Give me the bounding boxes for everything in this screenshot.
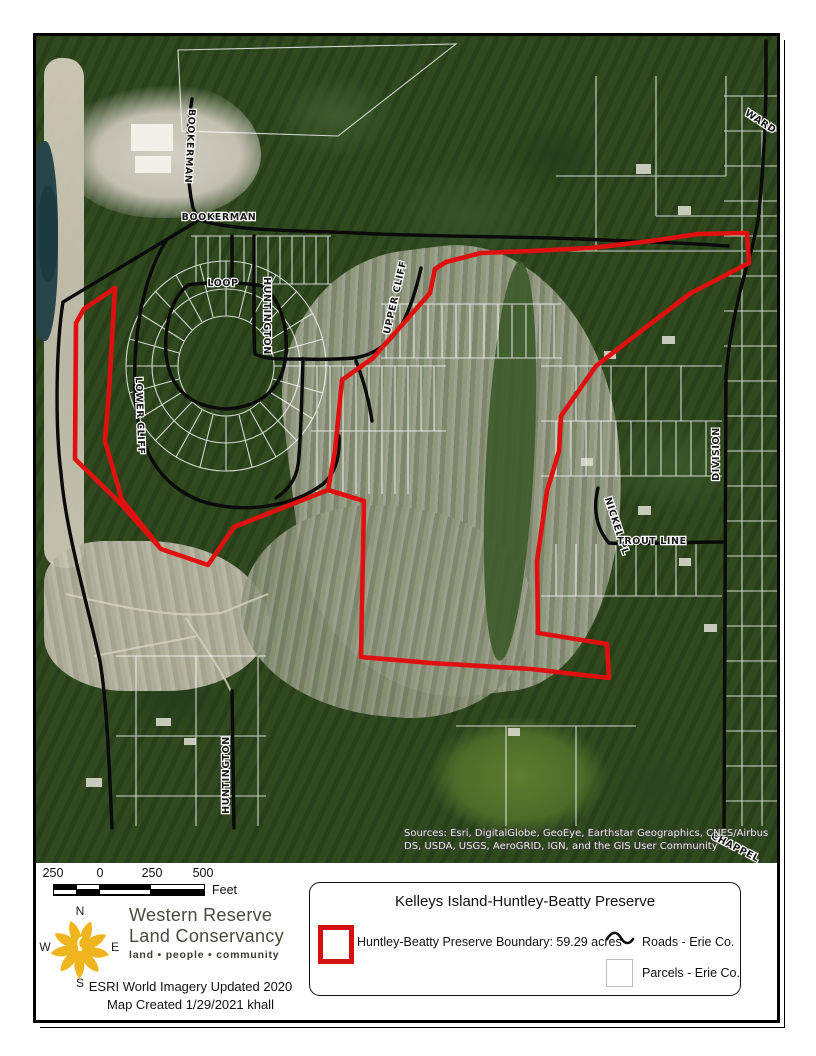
- scale-bar: [53, 884, 205, 896]
- legend-box: Kelleys Island-Huntley-Beatty Preserve H…: [309, 882, 741, 996]
- roads-legend-label: Roads - Erie Co.: [642, 935, 734, 949]
- parcels-legend-label: Parcels - Erie Co.: [642, 966, 740, 980]
- road-label-lower-cliff: LOWER CLIFF: [133, 377, 147, 455]
- map-frame: BOOKERMAN BOOKERMAN WARD LOOP HUNTINGTON…: [33, 33, 780, 1023]
- road-label-huntington-south: HUNTINGTON: [221, 736, 232, 814]
- legend-title: Kelleys Island-Huntley-Beatty Preserve: [310, 893, 740, 910]
- road-label-division: DIVISION: [711, 427, 722, 481]
- road-label-trout-line: TROUT LINE: [617, 536, 686, 547]
- frame-shadow: [40, 1027, 785, 1028]
- road-label-loop: LOOP: [207, 278, 238, 289]
- compass-north-label: N: [76, 904, 85, 918]
- roads-swatch: [605, 929, 635, 947]
- road-label-huntington: HUNTINGTON: [261, 277, 272, 355]
- parcel-lines: [116, 44, 777, 826]
- map-document-page: BOOKERMAN BOOKERMAN WARD LOOP HUNTINGTON…: [0, 0, 816, 1056]
- org-tagline: land • people • community: [129, 949, 284, 961]
- org-name-line2: Land Conservancy: [129, 926, 284, 947]
- creation-credit: Map Created 1/29/2021 khall: [58, 996, 323, 1014]
- map-credits: ESRI World Imagery Updated 2020 Map Crea…: [58, 978, 323, 1014]
- scale-unit-label: Feet: [212, 883, 237, 897]
- aerial-map-canvas: BOOKERMAN BOOKERMAN WARD LOOP HUNTINGTON…: [36, 36, 777, 863]
- boundary-swatch: [318, 925, 354, 964]
- boundary-legend-label: Huntley-Beatty Preserve Boundary: 59.29 …: [357, 935, 622, 949]
- imagery-sources-line2: DS, USDA, USGS, AeroGRID, IGN, and the G…: [404, 841, 718, 852]
- scale-tick-500: 500: [193, 866, 214, 880]
- road-label-bookerman-vertical: BOOKERMAN: [182, 109, 197, 184]
- scale-tick-250-left: 250: [43, 866, 64, 880]
- wrlc-sunburst-logo: [49, 918, 111, 980]
- scale-tick-0: 0: [97, 866, 104, 880]
- imagery-credit: ESRI World Imagery Updated 2020: [58, 978, 323, 996]
- frame-shadow: [784, 40, 785, 1028]
- compass-east-label: E: [111, 940, 119, 954]
- org-name-line1: Western Reserve: [129, 905, 284, 926]
- road-label-ward: WARD: [743, 108, 777, 136]
- road-label-bookerman: BOOKERMAN: [182, 212, 257, 223]
- map-vector-overlay: BOOKERMAN BOOKERMAN WARD LOOP HUNTINGTON…: [36, 36, 777, 863]
- imagery-sources-line1: Sources: Esri, DigitalGlobe, GeoEye, Ear…: [404, 828, 768, 839]
- road-labels: BOOKERMAN BOOKERMAN WARD LOOP HUNTINGTON…: [133, 108, 777, 863]
- building-footprints: [131, 124, 173, 173]
- scale-tick-250-right: 250: [142, 866, 163, 880]
- parcels-swatch: [606, 959, 633, 987]
- organization-block: Western Reserve Land Conservancy land • …: [129, 905, 284, 961]
